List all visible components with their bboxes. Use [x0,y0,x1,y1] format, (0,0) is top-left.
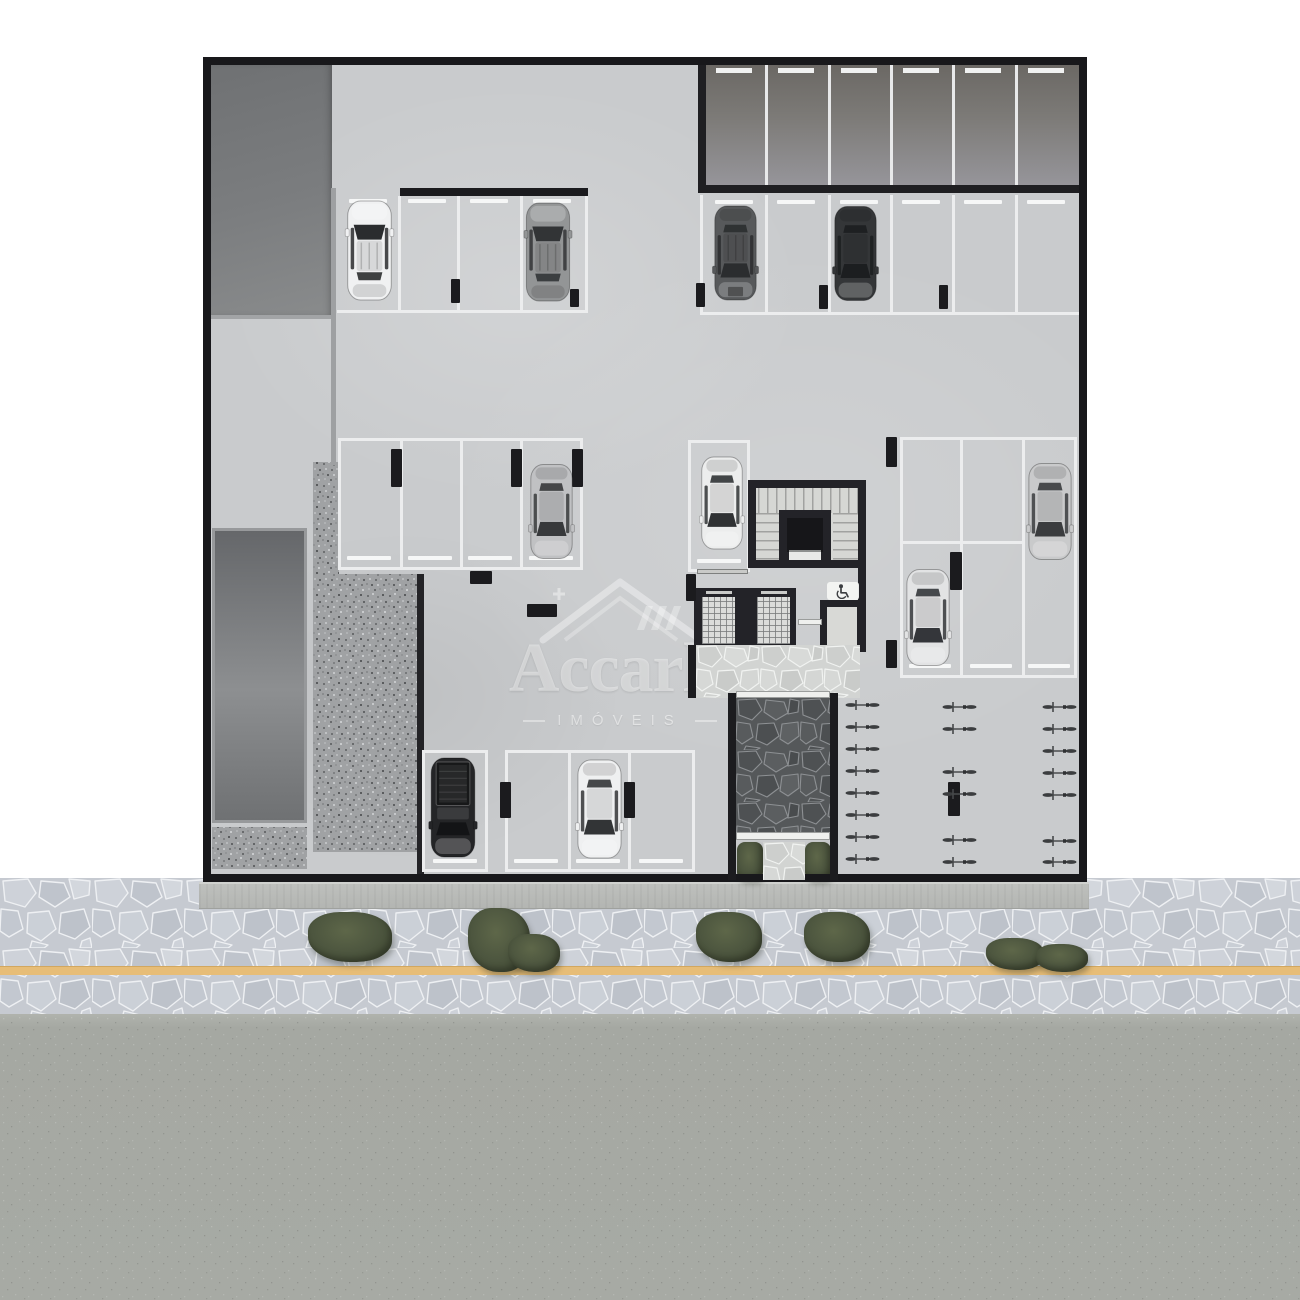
wheelchair-icon [833,583,853,599]
ramp-divider [1015,65,1018,185]
bush-4 [804,912,870,962]
bike-rack-column-3-bike-1 [1038,701,1082,713]
structural-column-7 [511,449,522,487]
stall-mark [347,556,391,560]
stall-mark [964,200,1002,204]
bike-rack-column-2-bike-4 [938,788,982,800]
car-white-sedan-center [699,449,745,557]
structural-column-4 [819,285,828,309]
stall-divider [568,753,571,869]
stall-divider [890,195,893,315]
car-silver-sedan-middle-right [1026,461,1074,562]
ramp-divider [828,65,831,185]
row1-aisle-line [337,310,588,313]
bush-5-part-2 [1036,944,1088,972]
structural-column-10 [527,604,557,617]
gray-wall-left [331,188,336,465]
stall-mark [1027,200,1065,204]
corridor-threshold [736,691,830,698]
ramp-divider [952,65,955,185]
bike-rack-column-1-bike-8 [841,853,885,865]
ramp-stall-mark [965,68,1001,73]
stall-mark [639,859,683,863]
stall-mark [470,199,508,203]
stall-divider [952,195,955,315]
accessible-wc-floor [827,607,857,645]
stall-mark [970,664,1012,668]
structural-column-13 [886,640,897,668]
ramp-stall-mark [841,68,877,73]
stall-mark [777,200,815,204]
stall-mark [433,859,477,863]
bush-1 [308,912,392,962]
entry-hedge-left [737,842,763,880]
ramp-stall-mark [716,68,752,73]
accessible-parking-sign [827,582,859,600]
bike-rack-column-3-bike-2 [1038,723,1082,735]
bike-rack-column-3-bike-6 [1038,835,1082,847]
row2-aisle-line [700,312,1079,315]
bike-rack-column-2-bike-2 [938,723,982,735]
handrail [697,569,748,574]
bike-rack-column-2-bike-6 [938,856,982,868]
car-black-sedan-top-right [832,202,879,305]
structural-column-9 [470,571,492,584]
bike-rack-column-3-bike-5 [1038,789,1082,801]
floor-plan-render: Accarle IMÓVEIS [0,0,1300,1300]
corridor-dark-flagstone [736,698,830,832]
elevator-sill-1 [706,591,732,594]
car-black-pickup-bottom [428,756,478,859]
ramp-divider [890,65,893,185]
bike-rack-column-3-bike-3 [1038,745,1082,757]
bush-2-part-2 [508,934,560,972]
elevator-sill-2 [761,591,787,594]
structural-column-14 [500,782,511,818]
structural-column-11 [886,437,897,467]
structural-column-1 [451,279,460,303]
stall-mark [408,556,452,560]
stall-divider [585,196,588,313]
stall-mark [468,556,512,560]
road-edge-yellow-line [0,966,1300,975]
ramp-stall-mark [1028,68,1064,73]
stall-divider [460,441,463,567]
elevator-cab-1 [702,597,735,644]
structural-column-5 [939,285,948,309]
bike-rack-column-1-bike-7 [841,831,885,843]
bike-rack-column-2-bike-5 [938,834,982,846]
bush-3 [696,912,762,962]
core-shaft-void [787,518,823,552]
bike-rack-column-1-bike-3 [841,743,885,755]
car-silver-sedan-middle-left [528,459,575,564]
car-white-sedan-bottom [575,758,624,860]
stall-divider-horizontal [903,541,1022,544]
bike-rack-column-3-bike-4 [1038,767,1082,779]
ramp-divider [765,65,768,185]
bike-rack-column-1-bike-5 [841,787,885,799]
building-sidewalk-apron [199,882,1089,909]
stall-divider [1015,195,1018,315]
stall-mark [697,559,741,563]
upper-level-dark-slab [211,65,332,319]
stair-treads-left [756,513,781,560]
ramp-stall-mark [903,68,939,73]
bike-rack-column-3-bike-7 [1038,856,1082,868]
row1-top-bar [400,188,588,196]
stall-divider [828,195,831,315]
bike-rack-column-1-bike-2 [841,721,885,733]
accessible-wc-door [798,619,822,625]
corridor-left-wall [728,693,736,880]
entry-path [763,842,805,880]
bike-rack-column-2-bike-3 [938,766,982,778]
bike-rack-column-1-bike-6 [841,809,885,821]
entry-hedge-right [805,842,831,880]
stall-mark [902,200,940,204]
plaza-left-wall [688,645,696,698]
structural-column-3 [696,283,705,307]
bike-rack-column-1-bike-4 [841,765,885,777]
core-shaft-sill [789,550,821,560]
stall-mark [1028,664,1070,668]
car-white-suv-top-left [344,199,395,302]
structural-column-16 [686,574,696,601]
bike-rack-column-2-bike-1 [938,701,982,713]
road-texture [0,1014,1300,1300]
stall-mark [514,859,558,863]
structural-column-6 [391,449,402,487]
elevator-cab-2 [757,597,790,644]
structural-column-15 [624,782,635,818]
stall-divider [398,196,401,310]
stall-divider [1022,440,1025,675]
corridor-right-wall [830,693,838,880]
stall-divider [765,195,768,315]
car-gray-van-top-right [712,201,759,305]
car-white-sedan-middle-right-lower [904,562,952,673]
car-gray-suv-top-left [522,201,574,303]
ramp-stall-mark [778,68,814,73]
stall-mark [408,199,446,203]
entry-gate [736,832,830,840]
stair-treads-right [833,513,858,560]
bike-rack-column-1-bike-1 [841,699,885,711]
